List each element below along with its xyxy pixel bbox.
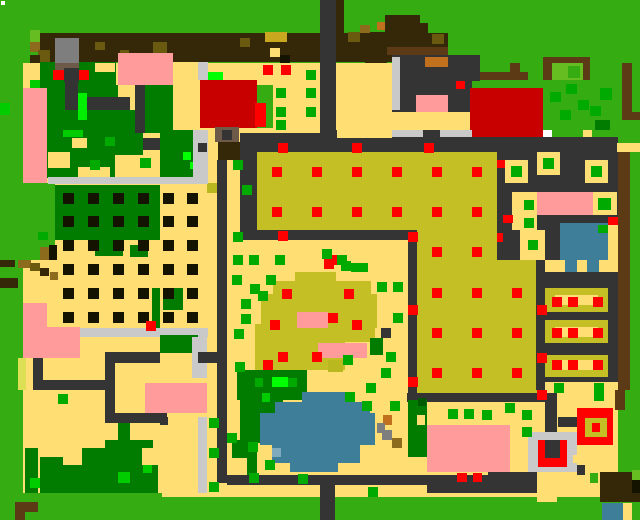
map-rect xyxy=(600,88,612,100)
crop-dot xyxy=(312,352,322,362)
map-rect xyxy=(365,32,387,63)
bush-dot xyxy=(298,474,308,484)
map-rect xyxy=(568,66,580,78)
north-path xyxy=(320,0,336,152)
tree-trunk-dot xyxy=(138,240,149,251)
map-rect xyxy=(63,130,83,137)
tree-trunk-dot xyxy=(187,312,198,323)
crop-dot xyxy=(593,360,603,370)
mound-center xyxy=(297,312,328,328)
map-rect xyxy=(416,95,448,112)
map-rect xyxy=(160,417,168,425)
crop-dot xyxy=(392,167,402,177)
tree-trunk-dot xyxy=(163,193,174,204)
map-rect xyxy=(622,112,640,120)
fence-east xyxy=(618,152,630,390)
crop-dot xyxy=(537,353,547,363)
map-rect xyxy=(560,110,571,120)
bush-dot xyxy=(227,433,237,443)
tree-trunk-dot xyxy=(187,264,198,275)
map-rect xyxy=(15,510,25,520)
crop-dot xyxy=(432,167,442,177)
map-rect xyxy=(272,448,281,457)
crop-dot xyxy=(328,313,338,323)
map-rect xyxy=(113,413,167,423)
map-rect xyxy=(377,22,385,30)
map-rect xyxy=(370,338,383,355)
map-rect xyxy=(382,430,392,440)
map-rect xyxy=(95,42,105,50)
tree-trunk-dot xyxy=(63,193,74,204)
map-rect xyxy=(497,160,505,168)
map-rect xyxy=(328,360,343,372)
tree-trunk-dot xyxy=(138,193,149,204)
map-rect xyxy=(40,247,49,260)
crop-dot xyxy=(552,297,562,307)
tree-trunk-dot xyxy=(113,312,124,323)
bush-dot xyxy=(505,403,515,413)
door-path xyxy=(65,97,130,110)
map-rect xyxy=(143,465,152,473)
tree-trunk-dot xyxy=(163,240,174,251)
bush-dot xyxy=(322,249,332,259)
map-rect xyxy=(198,352,227,363)
lantern xyxy=(79,70,89,80)
bush-dot xyxy=(248,442,258,452)
tree-trunk-dot xyxy=(138,216,149,227)
crop-dot xyxy=(352,207,362,217)
crop-dot xyxy=(278,231,288,241)
crop-dot xyxy=(281,65,291,75)
map-rect xyxy=(255,103,266,127)
pink-roof-building xyxy=(118,53,173,85)
map-rect xyxy=(280,55,290,63)
map-rect xyxy=(566,84,577,94)
crop-dot xyxy=(593,328,603,338)
map-rect xyxy=(105,440,153,448)
crop-dot xyxy=(392,207,402,217)
map-rect xyxy=(432,34,444,44)
map-rect xyxy=(240,38,250,47)
map-rect xyxy=(598,198,611,210)
map-rect xyxy=(408,400,427,457)
map-rect xyxy=(598,225,608,233)
map-rect xyxy=(392,438,402,448)
map-rect xyxy=(623,503,632,520)
tree-trunk-dot xyxy=(187,193,198,204)
map-rect xyxy=(592,423,600,432)
bush-dot xyxy=(242,185,252,195)
map-rect xyxy=(577,465,585,475)
map-rect xyxy=(118,472,130,483)
crop-dot xyxy=(352,167,362,177)
tree-trunk-dot xyxy=(63,312,74,323)
bush-dot xyxy=(249,255,259,265)
map-rect xyxy=(543,158,554,169)
tree-trunk-dot xyxy=(113,264,124,275)
bush-dot xyxy=(275,255,285,265)
bush-dot xyxy=(343,355,353,365)
crop-dot xyxy=(272,167,282,177)
map-rect xyxy=(208,72,223,80)
map-rect xyxy=(545,440,560,458)
tree-trunk-dot xyxy=(138,264,149,275)
map-rect xyxy=(392,130,423,137)
map-rect xyxy=(602,503,623,520)
map-rect xyxy=(82,448,142,465)
map-rect xyxy=(392,57,400,110)
map-rect xyxy=(78,93,87,120)
crop-dot xyxy=(552,328,562,338)
chimney xyxy=(55,38,79,63)
crop-dot xyxy=(408,232,418,242)
bush-dot xyxy=(345,392,355,402)
crop-dot xyxy=(472,288,482,298)
map-rect xyxy=(360,25,370,33)
map-rect xyxy=(345,42,367,55)
map-rect xyxy=(265,32,287,42)
map-rect xyxy=(590,473,598,483)
map-rect xyxy=(18,358,26,390)
map-rect xyxy=(38,232,48,240)
map-rect xyxy=(290,460,338,472)
crop-dot xyxy=(146,321,156,331)
tree-trunk-dot xyxy=(88,193,99,204)
map-rect xyxy=(49,245,57,260)
crop-dot xyxy=(282,289,292,299)
crop-dot xyxy=(352,320,362,330)
map-rect xyxy=(337,130,392,138)
map-rect xyxy=(573,455,582,463)
crop-dot xyxy=(408,305,418,315)
bush-dot xyxy=(276,120,286,130)
crop-dot xyxy=(312,167,322,177)
map-rect xyxy=(381,328,391,338)
crop-dot xyxy=(472,247,482,257)
crop-dot xyxy=(512,328,522,338)
tree-trunk-dot xyxy=(187,240,198,251)
crop-dot xyxy=(432,207,442,217)
bush-dot xyxy=(249,473,259,483)
pink-bed xyxy=(537,192,593,215)
crop-dot xyxy=(472,328,482,338)
stone-path xyxy=(48,177,208,184)
map-rect xyxy=(198,143,207,152)
map-rect xyxy=(140,158,151,168)
bush-dot xyxy=(393,282,403,292)
bush-dot xyxy=(241,314,251,324)
map-rect xyxy=(524,200,534,210)
bush-dot xyxy=(234,329,244,339)
tree-trunk-dot xyxy=(163,312,174,323)
pink-plot xyxy=(23,327,80,358)
map-rect xyxy=(40,268,49,276)
bush-dot xyxy=(362,401,372,411)
map-rect xyxy=(524,218,534,228)
tree-trunk-dot xyxy=(163,264,174,275)
map-rect xyxy=(222,130,232,140)
map-rect xyxy=(617,143,640,152)
center-path xyxy=(217,160,227,483)
map-rect xyxy=(578,100,589,110)
field-path xyxy=(408,232,417,400)
tree-trunk-dot xyxy=(163,216,174,227)
map-rect xyxy=(472,130,543,137)
map-rect xyxy=(0,278,18,288)
map-rect xyxy=(336,0,344,33)
crop-dot xyxy=(272,207,282,217)
tree-trunk-dot xyxy=(88,312,99,323)
crop-dot xyxy=(263,360,273,370)
crop-dot xyxy=(344,289,354,299)
map-rect xyxy=(587,260,599,272)
crop-dot xyxy=(568,297,578,307)
bush-dot xyxy=(366,383,376,393)
map-rect xyxy=(40,457,63,493)
crop-dot xyxy=(432,368,442,378)
bush-dot xyxy=(393,313,403,323)
crop-dot xyxy=(593,297,603,307)
map-rect xyxy=(608,217,618,225)
tree-trunk-dot xyxy=(63,288,74,299)
bush-dot xyxy=(522,410,532,420)
crop-dot xyxy=(432,288,442,298)
tree-trunk-dot xyxy=(163,288,174,299)
bush-dot xyxy=(233,232,243,242)
map-rect xyxy=(543,130,552,137)
tree-trunk-dot xyxy=(63,264,74,275)
pink-roof-house xyxy=(23,88,47,183)
map-rect xyxy=(30,80,40,88)
bush-dot xyxy=(381,368,391,378)
map-rect xyxy=(583,130,592,137)
crop-dot xyxy=(278,143,288,153)
map-rect xyxy=(95,63,115,72)
map-rect xyxy=(90,160,100,170)
tree-trunk-dot xyxy=(63,240,74,251)
bush-dot xyxy=(368,487,378,497)
bush-dot xyxy=(209,482,219,492)
map-rect xyxy=(30,55,40,63)
farm-map-canvas[interactable] xyxy=(0,0,640,520)
bush-dot xyxy=(209,448,219,458)
tree-trunk-dot xyxy=(88,216,99,227)
bush-dot xyxy=(306,70,316,80)
map-rect xyxy=(262,393,270,402)
bush-dot xyxy=(448,409,458,419)
bush-dot xyxy=(464,409,474,419)
map-rect xyxy=(503,215,513,223)
map-rect xyxy=(50,272,58,280)
map-rect xyxy=(400,23,428,45)
crop-dot xyxy=(568,360,578,370)
map-rect xyxy=(33,380,115,390)
map-rect xyxy=(198,62,208,80)
bush-dot xyxy=(258,291,268,301)
crop-dot xyxy=(408,377,418,387)
crop-dot xyxy=(472,167,482,177)
map-rect xyxy=(407,393,545,402)
map-rect xyxy=(30,30,40,42)
map-rect xyxy=(615,390,625,410)
map-rect xyxy=(135,85,145,133)
crop-dot xyxy=(512,288,522,298)
map-rect xyxy=(288,378,297,387)
crop-dot xyxy=(537,305,547,315)
map-rect xyxy=(473,473,482,482)
map-rect xyxy=(255,378,263,387)
map-rect xyxy=(193,130,208,177)
copper-roof xyxy=(425,57,448,67)
tree-trunk-dot xyxy=(63,216,74,227)
crop-dot xyxy=(568,328,578,338)
bush-dot xyxy=(232,275,242,285)
bush-dot xyxy=(233,255,243,265)
bush-dot xyxy=(522,427,532,437)
map-rect xyxy=(270,48,280,57)
map-rect xyxy=(351,263,368,272)
bush-dot xyxy=(306,88,316,98)
map-rect xyxy=(145,85,173,133)
tree-trunk-dot xyxy=(88,240,99,251)
bush-dot xyxy=(337,255,347,265)
tree-trunk-dot xyxy=(138,288,149,299)
bush-dot xyxy=(276,107,286,117)
map-rect xyxy=(590,106,601,116)
map-rect xyxy=(30,263,40,271)
map-rect xyxy=(440,130,472,137)
map-rect xyxy=(72,138,87,148)
bush-dot xyxy=(209,418,219,428)
tree-trunk-dot xyxy=(187,216,198,227)
tree-trunk-dot xyxy=(113,240,124,251)
map-rect xyxy=(528,240,538,250)
map-rect xyxy=(183,152,191,160)
farmhouse-door xyxy=(64,68,79,82)
map-rect xyxy=(591,166,602,177)
map-rect xyxy=(632,470,640,480)
map-rect xyxy=(143,138,160,150)
crop-dot xyxy=(312,207,322,217)
bush-dot xyxy=(266,275,276,285)
map-rect xyxy=(595,120,610,130)
crop-dot xyxy=(270,320,280,330)
map-rect xyxy=(457,473,467,482)
map-rect xyxy=(565,260,577,272)
map-rect xyxy=(0,103,10,115)
map-rect xyxy=(511,166,522,177)
map-rect xyxy=(105,137,115,146)
bush-dot xyxy=(58,394,68,404)
map-rect xyxy=(30,478,40,488)
crop-dot xyxy=(512,368,522,378)
pink-plot xyxy=(145,383,207,413)
map-rect xyxy=(417,232,497,260)
bush-dot xyxy=(390,401,400,411)
tree-trunk-dot xyxy=(88,264,99,275)
tree-trunk-dot xyxy=(88,288,99,299)
map-rect xyxy=(0,260,15,267)
crop-dot xyxy=(472,207,482,217)
bush-dot xyxy=(233,160,243,170)
bush-dot xyxy=(235,362,245,372)
lantern xyxy=(53,70,64,80)
map-rect xyxy=(348,32,360,42)
bush-dot xyxy=(241,299,251,309)
map-rect xyxy=(537,472,557,502)
map-rect xyxy=(207,183,217,193)
red-barn xyxy=(200,80,257,128)
map-rect xyxy=(198,417,207,493)
bush-dot xyxy=(276,88,286,98)
tree-trunk-dot xyxy=(187,288,198,299)
crop-dot xyxy=(424,143,434,153)
map-rect xyxy=(1,1,5,5)
bush-dot xyxy=(554,383,564,393)
bush-dot xyxy=(594,383,604,393)
map-rect xyxy=(320,485,335,520)
crop-dot xyxy=(278,352,288,362)
map-rect xyxy=(240,230,417,240)
crop-dot xyxy=(352,143,362,153)
map-rect xyxy=(48,152,70,168)
crop-field xyxy=(257,152,497,232)
pond xyxy=(260,413,375,445)
map-rect xyxy=(218,142,240,160)
map-rect xyxy=(272,377,288,387)
bush-dot xyxy=(386,352,396,362)
crop-dot xyxy=(472,368,482,378)
map-rect xyxy=(488,472,537,493)
bush-dot xyxy=(265,460,275,470)
map-rect xyxy=(456,81,465,89)
map-rect xyxy=(550,92,561,102)
map-rect xyxy=(510,63,520,72)
bush-dot xyxy=(377,282,387,292)
crop-dot xyxy=(432,247,442,257)
map-rect xyxy=(417,415,425,425)
pink-roof-barn xyxy=(427,425,510,472)
map-rect xyxy=(537,390,547,400)
tree-trunk-dot xyxy=(113,193,124,204)
crop-dot xyxy=(552,360,562,370)
bush-dot xyxy=(306,107,316,117)
crop-dot xyxy=(432,328,442,338)
bush-dot xyxy=(482,410,492,420)
map-rect xyxy=(160,497,640,520)
tree-trunk-dot xyxy=(113,216,124,227)
map-rect xyxy=(418,398,426,406)
tree-trunk-dot xyxy=(113,288,124,299)
crop-dot xyxy=(263,65,273,75)
